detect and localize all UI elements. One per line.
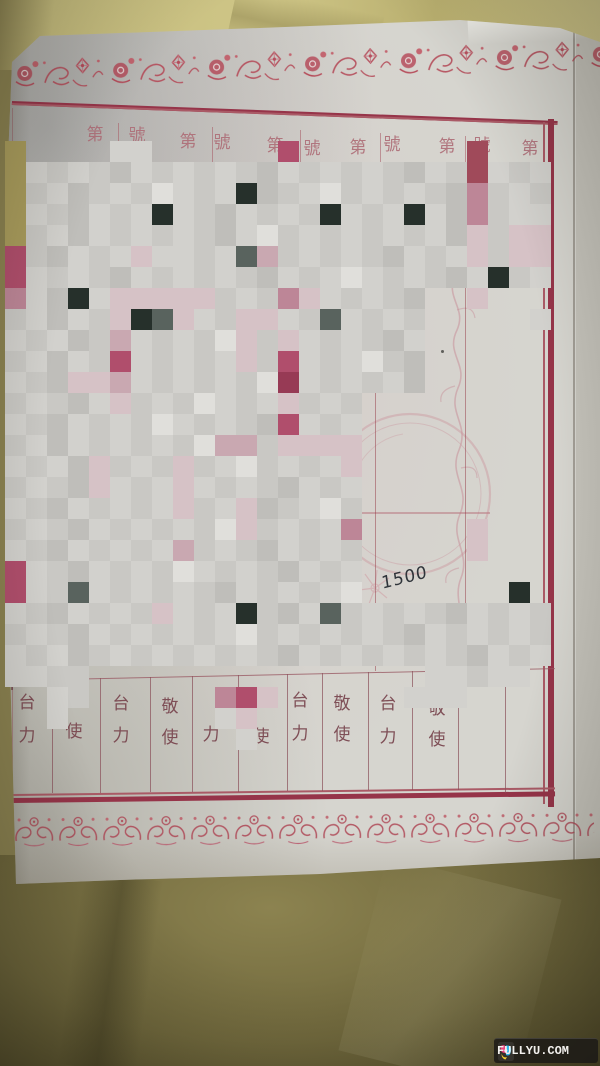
mosaic-cell <box>89 372 110 393</box>
mosaic-cell <box>299 183 320 204</box>
mosaic-cell <box>131 309 152 330</box>
mosaic-cell <box>530 582 551 603</box>
mosaic-cell <box>425 603 446 624</box>
mosaic-cell <box>425 519 446 540</box>
mosaic-cell <box>404 246 425 267</box>
mosaic-cell <box>488 435 509 456</box>
mosaic-cell <box>68 309 89 330</box>
mosaic-cell <box>320 477 341 498</box>
mosaic-cell <box>236 561 257 582</box>
mosaic-cell <box>341 687 362 708</box>
mosaic-cell <box>488 288 509 309</box>
mosaic-cell <box>362 561 383 582</box>
mosaic-cell <box>68 435 89 456</box>
mosaic-cell <box>341 666 362 687</box>
mosaic-cell <box>173 540 194 561</box>
mosaic-cell <box>530 267 551 288</box>
mosaic-cell <box>383 603 404 624</box>
mosaic-cell <box>509 477 530 498</box>
mosaic-cell <box>236 708 257 729</box>
mosaic-cell <box>47 624 68 645</box>
mosaic-cell <box>110 729 131 750</box>
mosaic-cell <box>320 351 341 372</box>
mosaic-cell <box>215 309 236 330</box>
mosaic-cell <box>509 582 530 603</box>
mosaic-cell <box>425 183 446 204</box>
mosaic-cell <box>194 540 215 561</box>
mosaic-cell <box>215 225 236 246</box>
mosaic-cell <box>299 624 320 645</box>
mosaic-cell <box>320 288 341 309</box>
mosaic-cell <box>236 414 257 435</box>
mosaic-cell <box>131 498 152 519</box>
mosaic-cell <box>236 183 257 204</box>
mosaic-cell <box>446 561 467 582</box>
mosaic-cell <box>110 687 131 708</box>
mosaic-cell <box>404 624 425 645</box>
mosaic-cell <box>404 225 425 246</box>
mosaic-cell <box>173 561 194 582</box>
mosaic-cell <box>194 477 215 498</box>
mosaic-cell <box>278 162 299 183</box>
mosaic-cell <box>383 141 404 162</box>
mosaic-cell <box>425 351 446 372</box>
mosaic-cell <box>89 456 110 477</box>
mosaic-cell <box>257 708 278 729</box>
mosaic-cell <box>278 582 299 603</box>
mosaic-cell <box>278 519 299 540</box>
mosaic-cell <box>509 414 530 435</box>
mosaic-cell <box>26 645 47 666</box>
mosaic-cell <box>509 645 530 666</box>
mosaic-cell <box>299 456 320 477</box>
mosaic-cell <box>320 540 341 561</box>
mosaic-cell <box>47 267 68 288</box>
mosaic-cell <box>446 204 467 225</box>
mosaic-cell <box>488 162 509 183</box>
mosaic-cell <box>530 708 551 729</box>
mosaic-cell <box>446 372 467 393</box>
mosaic-cell <box>152 540 173 561</box>
mosaic-cell <box>509 267 530 288</box>
mosaic-cell <box>383 540 404 561</box>
mosaic-cell <box>530 225 551 246</box>
mosaic-cell <box>404 141 425 162</box>
mosaic-cell <box>488 582 509 603</box>
mosaic-cell <box>26 708 47 729</box>
mosaic-cell <box>131 267 152 288</box>
mosaic-cell <box>89 225 110 246</box>
mosaic-cell <box>152 414 173 435</box>
mosaic-cell <box>488 708 509 729</box>
mosaic-cell <box>26 666 47 687</box>
mosaic-cell <box>320 582 341 603</box>
mosaic-cell <box>152 666 173 687</box>
mosaic-cell <box>131 666 152 687</box>
mosaic-cell <box>152 141 173 162</box>
mosaic-cell <box>152 477 173 498</box>
mosaic-cell <box>341 372 362 393</box>
mosaic-cell <box>299 645 320 666</box>
mosaic-cell <box>341 645 362 666</box>
mosaic-cell <box>47 456 68 477</box>
mosaic-cell <box>173 477 194 498</box>
mosaic-cell <box>404 666 425 687</box>
mosaic-cell <box>131 687 152 708</box>
mosaic-cell <box>509 309 530 330</box>
mosaic-cell <box>446 414 467 435</box>
mosaic-cell <box>425 309 446 330</box>
mosaic-cell <box>488 246 509 267</box>
mosaic-cell <box>299 729 320 750</box>
mosaic-cell <box>530 456 551 477</box>
mosaic-cell <box>47 372 68 393</box>
mosaic-cell <box>530 246 551 267</box>
mosaic-cell <box>446 435 467 456</box>
mosaic-cell <box>467 288 488 309</box>
mosaic-cell <box>257 309 278 330</box>
mosaic-cell <box>446 330 467 351</box>
mosaic-cell <box>215 645 236 666</box>
mosaic-cell <box>26 603 47 624</box>
mosaic-cell <box>278 141 299 162</box>
mosaic-cell <box>278 666 299 687</box>
mosaic-cell <box>152 393 173 414</box>
mosaic-cell <box>467 561 488 582</box>
mosaic-cell <box>278 414 299 435</box>
watermark-text: FULLYU.COM <box>497 1044 569 1058</box>
mosaic-cell <box>89 414 110 435</box>
mosaic-cell <box>320 729 341 750</box>
mosaic-cell <box>89 708 110 729</box>
watermark: FULLYU.COM <box>494 1038 598 1063</box>
mosaic-cell <box>236 645 257 666</box>
mosaic-cell <box>5 540 26 561</box>
mosaic-cell <box>446 309 467 330</box>
mosaic-cell <box>89 204 110 225</box>
mosaic-cell <box>131 351 152 372</box>
mosaic-cell <box>488 687 509 708</box>
mosaic-cell <box>110 267 131 288</box>
mosaic-cell <box>530 645 551 666</box>
mosaic-cell <box>467 246 488 267</box>
mosaic-cell <box>194 351 215 372</box>
mosaic-cell <box>152 288 173 309</box>
mosaic-cell <box>320 267 341 288</box>
mosaic-cell <box>320 624 341 645</box>
mosaic-cell <box>47 204 68 225</box>
mosaic-cell <box>425 729 446 750</box>
mosaic-cell <box>152 267 173 288</box>
mosaic-cell <box>236 687 257 708</box>
mosaic-cell <box>341 330 362 351</box>
mosaic-cell <box>68 582 89 603</box>
mosaic-cell <box>488 498 509 519</box>
mosaic-cell <box>47 519 68 540</box>
mosaic-cell <box>404 645 425 666</box>
mosaic-cell <box>509 204 530 225</box>
mosaic-cell <box>530 372 551 393</box>
mosaic-cell <box>173 372 194 393</box>
mosaic-cell <box>152 225 173 246</box>
mosaic-cell <box>5 519 26 540</box>
mosaic-cell <box>488 204 509 225</box>
mosaic-cell <box>194 519 215 540</box>
mosaic-cell <box>341 603 362 624</box>
mosaic-cell <box>5 624 26 645</box>
mosaic-cell <box>341 267 362 288</box>
mosaic-cell <box>362 372 383 393</box>
mosaic-cell <box>467 456 488 477</box>
mosaic-cell <box>152 309 173 330</box>
mosaic-cell <box>257 603 278 624</box>
mosaic-cell <box>68 540 89 561</box>
mosaic-cell <box>341 456 362 477</box>
mosaic-cell <box>131 288 152 309</box>
mosaic-cell <box>446 624 467 645</box>
mosaic-cell <box>257 498 278 519</box>
mosaic-cell <box>194 729 215 750</box>
mosaic-cell <box>236 729 257 750</box>
mosaic-cell <box>278 477 299 498</box>
mosaic-cell <box>425 162 446 183</box>
mosaic-cell <box>173 414 194 435</box>
mosaic-cell <box>68 498 89 519</box>
mosaic-cell <box>257 519 278 540</box>
mosaic-cell <box>404 372 425 393</box>
mosaic-cell <box>467 666 488 687</box>
mosaic-cell <box>5 141 26 162</box>
mosaic-cell <box>467 309 488 330</box>
mosaic-cell <box>320 372 341 393</box>
mosaic-cell <box>173 162 194 183</box>
mosaic-cell <box>530 414 551 435</box>
mosaic-cell <box>509 162 530 183</box>
mosaic-cell <box>89 603 110 624</box>
mosaic-cell <box>215 603 236 624</box>
mosaic-cell <box>215 687 236 708</box>
mosaic-cell <box>110 246 131 267</box>
mosaic-cell <box>278 204 299 225</box>
mosaic-cell <box>383 351 404 372</box>
mosaic-cell <box>404 414 425 435</box>
mosaic-cell <box>110 456 131 477</box>
mosaic-cell <box>278 561 299 582</box>
mosaic-cell <box>278 183 299 204</box>
mosaic-cell <box>425 687 446 708</box>
mosaic-cell <box>404 519 425 540</box>
mosaic-cell <box>320 309 341 330</box>
mosaic-cell <box>320 498 341 519</box>
mosaic-cell <box>89 687 110 708</box>
mosaic-cell <box>488 540 509 561</box>
mosaic-cell <box>173 456 194 477</box>
mosaic-cell <box>320 141 341 162</box>
mosaic-cell <box>425 645 446 666</box>
mosaic-cell <box>5 162 26 183</box>
mosaic-cell <box>215 708 236 729</box>
mosaic-cell <box>215 666 236 687</box>
mosaic-cell <box>383 687 404 708</box>
mosaic-cell <box>152 435 173 456</box>
mosaic-cell <box>5 708 26 729</box>
mosaic-cell <box>110 540 131 561</box>
mosaic-cell <box>152 330 173 351</box>
mosaic-cell <box>5 561 26 582</box>
mosaic-cell <box>404 477 425 498</box>
mosaic-cell <box>68 225 89 246</box>
mosaic-cell <box>278 393 299 414</box>
mosaic-cell <box>530 141 551 162</box>
mosaic-cell <box>425 288 446 309</box>
mosaic-cell <box>215 330 236 351</box>
mosaic-cell <box>467 183 488 204</box>
mosaic-cell <box>68 624 89 645</box>
mosaic-cell <box>194 225 215 246</box>
mosaic-cell <box>236 141 257 162</box>
mosaic-cell <box>5 288 26 309</box>
mosaic-cell <box>467 414 488 435</box>
mosaic-cell <box>404 162 425 183</box>
mosaic-cell <box>320 687 341 708</box>
mosaic-cell <box>509 540 530 561</box>
mosaic-cell <box>446 498 467 519</box>
mosaic-cell <box>278 456 299 477</box>
mosaic-cell <box>89 477 110 498</box>
mosaic-cell <box>299 477 320 498</box>
mosaic-cell <box>173 582 194 603</box>
mosaic-cell <box>383 288 404 309</box>
mosaic-cell <box>530 351 551 372</box>
mosaic-cell <box>425 708 446 729</box>
mosaic-cell <box>488 666 509 687</box>
mosaic-cell <box>68 141 89 162</box>
mosaic-cell <box>68 561 89 582</box>
mosaic-cell <box>509 708 530 729</box>
mosaic-cell <box>257 288 278 309</box>
mosaic-cell <box>194 666 215 687</box>
mosaic-cell <box>26 729 47 750</box>
mosaic-cell <box>299 141 320 162</box>
mosaic-cell <box>341 561 362 582</box>
mosaic-cell <box>173 645 194 666</box>
mosaic-cell <box>299 708 320 729</box>
mosaic-cell <box>215 246 236 267</box>
mosaic-cell <box>299 435 320 456</box>
mosaic-cell <box>320 204 341 225</box>
mosaic-cell <box>152 183 173 204</box>
mosaic-cell <box>194 561 215 582</box>
mosaic-cell <box>89 141 110 162</box>
mosaic-cell <box>362 351 383 372</box>
mosaic-cell <box>131 519 152 540</box>
mosaic-cell <box>215 624 236 645</box>
mosaic-cell <box>68 729 89 750</box>
mosaic-cell <box>26 372 47 393</box>
mosaic-cell <box>278 603 299 624</box>
mosaic-cell <box>530 666 551 687</box>
mosaic-cell <box>173 393 194 414</box>
mosaic-cell <box>467 603 488 624</box>
mosaic-cell <box>509 351 530 372</box>
mosaic-cell <box>425 246 446 267</box>
mosaic-cell <box>89 645 110 666</box>
mosaic-cell <box>362 582 383 603</box>
mosaic-cell <box>488 624 509 645</box>
mosaic-cell <box>425 561 446 582</box>
mosaic-cell <box>509 498 530 519</box>
mosaic-cell <box>278 435 299 456</box>
mosaic-cell <box>362 246 383 267</box>
mosaic-cell <box>131 540 152 561</box>
mosaic-cell <box>257 414 278 435</box>
mosaic-cell <box>509 666 530 687</box>
mosaic-cell <box>68 288 89 309</box>
mosaic-cell <box>110 351 131 372</box>
mosaic-cell <box>257 183 278 204</box>
mosaic-cell <box>341 540 362 561</box>
mosaic-cell <box>341 351 362 372</box>
mosaic-cell <box>362 519 383 540</box>
mosaic-cell <box>320 435 341 456</box>
mosaic-cell <box>68 687 89 708</box>
mosaic-cell <box>341 477 362 498</box>
mosaic-cell <box>89 393 110 414</box>
mosaic-cell <box>362 540 383 561</box>
mosaic-cell <box>5 330 26 351</box>
mosaic-cell <box>131 561 152 582</box>
mosaic-cell <box>68 414 89 435</box>
mosaic-cell <box>5 729 26 750</box>
mosaic-cell <box>194 330 215 351</box>
mosaic-cell <box>194 498 215 519</box>
mosaic-cell <box>5 666 26 687</box>
mosaic-cell <box>362 141 383 162</box>
mosaic-cell <box>110 372 131 393</box>
mosaic-cell <box>47 225 68 246</box>
mosaic-cell <box>404 687 425 708</box>
mosaic-cell <box>257 687 278 708</box>
mosaic-cell <box>236 330 257 351</box>
mosaic-cell <box>488 267 509 288</box>
mosaic-cell <box>47 603 68 624</box>
mosaic-cell <box>194 582 215 603</box>
mosaic-cell <box>509 183 530 204</box>
mosaic-cell <box>152 561 173 582</box>
mosaic-cell <box>530 288 551 309</box>
mosaic-cell <box>173 246 194 267</box>
mosaic-cell <box>530 624 551 645</box>
mosaic-cell <box>89 519 110 540</box>
mosaic-cell <box>320 393 341 414</box>
mosaic-cell <box>257 477 278 498</box>
mosaic-cell <box>215 183 236 204</box>
mosaic-cell <box>173 183 194 204</box>
mosaic-cell <box>68 477 89 498</box>
mosaic-cell <box>152 582 173 603</box>
mosaic-cell <box>47 393 68 414</box>
mosaic-cell <box>194 141 215 162</box>
mosaic-cell <box>446 582 467 603</box>
mosaic-cell <box>26 204 47 225</box>
mosaic-cell <box>488 372 509 393</box>
mosaic-cell <box>383 645 404 666</box>
mosaic-cell <box>383 435 404 456</box>
mosaic-cell <box>173 267 194 288</box>
mosaic-cell <box>215 204 236 225</box>
mosaic-cell <box>278 288 299 309</box>
mosaic-cell <box>467 729 488 750</box>
